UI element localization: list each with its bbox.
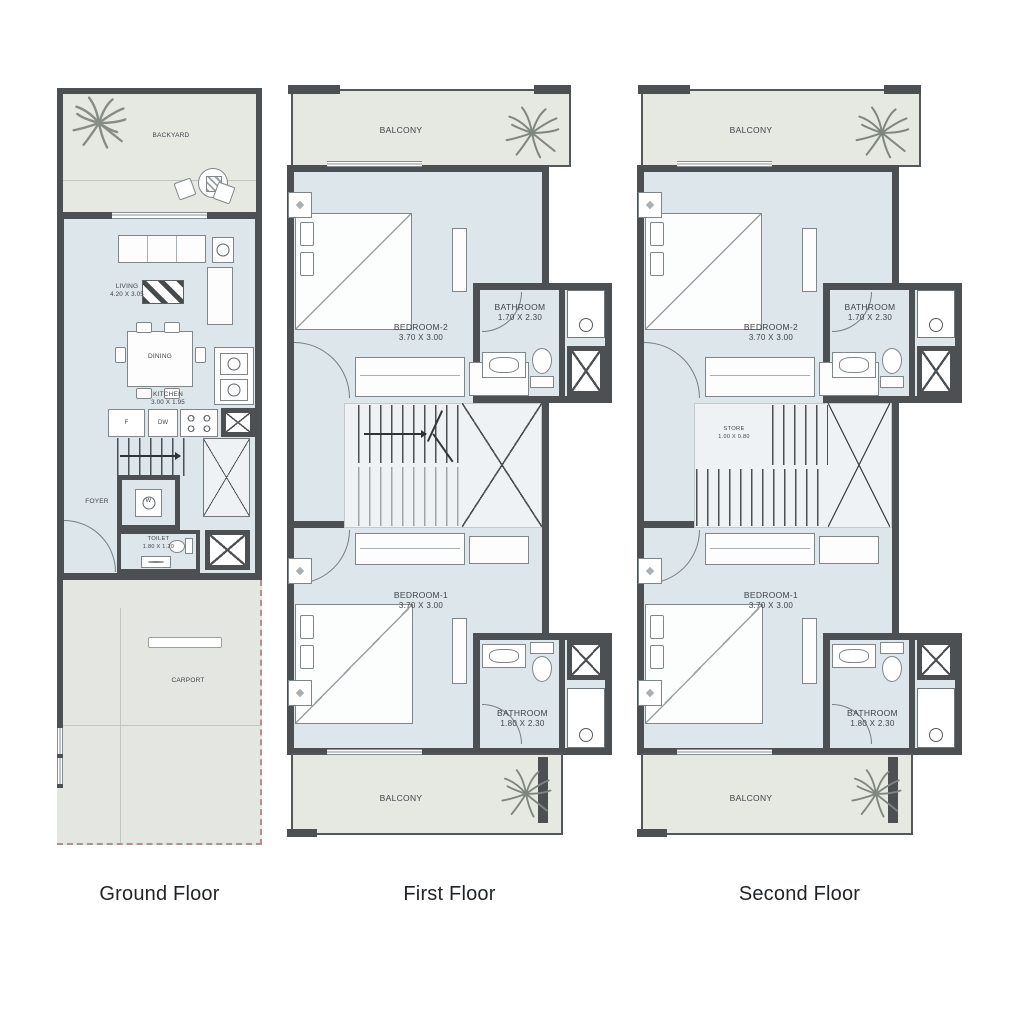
living-dim: 4.20 X 3.05	[94, 291, 160, 299]
shaft-xbox	[205, 530, 250, 570]
room-label-bathroom2: BATHROOM 1.70 X 2.30	[480, 302, 560, 323]
kitchen-sink	[220, 379, 248, 401]
stove	[180, 409, 218, 437]
pillow	[650, 222, 664, 246]
pillow	[300, 615, 314, 639]
store-label: STORE	[723, 426, 744, 432]
dresser	[452, 618, 467, 684]
stairs-landing	[462, 403, 542, 527]
balcony-top: BALCONY	[641, 89, 921, 167]
bedroom2-dim: 3.70 X 3.00	[346, 333, 496, 343]
pillow	[650, 252, 664, 276]
toilet-dim: 1.80 X 1.20	[123, 544, 194, 551]
stair-hall: STORE 1.00 X 0.80	[637, 403, 899, 528]
bedroom2-label: BEDROOM-2	[394, 322, 448, 332]
bedroom-door-arc	[294, 342, 350, 398]
bedroom2-window	[677, 161, 772, 167]
carport-window	[57, 728, 63, 754]
bedroom1-label: BEDROOM-1	[744, 590, 798, 600]
room-label-dining: DINING	[127, 353, 193, 361]
toilet-tank	[880, 642, 904, 654]
room-label-bathroom1: BATHROOM 1.80 X 2.30	[480, 708, 565, 729]
room-label-living: LIVING 4.20 X 3.05	[94, 283, 160, 300]
entry-door-arc	[64, 520, 116, 572]
bathroom-sink	[832, 644, 876, 668]
palm-icon	[853, 103, 911, 161]
pillow	[650, 645, 664, 669]
living-label: LIVING	[116, 283, 139, 290]
wardrobe	[705, 533, 815, 565]
room-label-foyer: FOYER	[69, 498, 125, 506]
balcony-wall-cap	[287, 829, 317, 837]
bedroom1-dim: 3.70 X 3.00	[346, 601, 496, 611]
stairs-treads-dashed	[358, 467, 468, 526]
balcony-wall-cap	[638, 85, 690, 94]
wall-marker	[288, 680, 312, 706]
room-label-backyard: BACKYARD	[135, 132, 207, 140]
dresser	[802, 618, 817, 684]
bedroom2-window	[327, 161, 422, 167]
room-label-balcony: BALCONY	[313, 793, 489, 804]
room-label-store: STORE 1.00 X 0.80	[701, 426, 767, 441]
carport-area: CARPORT	[57, 580, 262, 845]
dining-chair	[195, 347, 206, 363]
shaft-xbox	[221, 408, 255, 437]
fridge: F	[108, 409, 145, 437]
bathroom-sink	[482, 352, 526, 378]
shaft-xbox	[567, 640, 605, 680]
second-floor-plan: BALCONY BEDROOM-2 3.70 X 3.00 BATHROOM	[637, 85, 962, 855]
room-label-bathroom1: BATHROOM 1.80 X 2.30	[830, 708, 915, 729]
bedroom2-label: BEDROOM-2	[744, 322, 798, 332]
dishwasher: DW	[148, 409, 178, 437]
bed	[645, 604, 763, 724]
living-window	[112, 212, 207, 219]
first-floor-plan: BALCONY BEDROOM-2 3.70 X 3.00 BATHROOM	[287, 85, 612, 855]
toilet-bowl	[532, 656, 552, 682]
stair-hall	[287, 403, 549, 528]
pillow	[300, 222, 314, 246]
wardrobe	[355, 533, 465, 565]
bathroom1-dim: 1.80 X 2.30	[830, 719, 915, 729]
balcony-bottom: BALCONY	[291, 753, 563, 835]
bed	[645, 213, 762, 330]
media-unit	[212, 237, 234, 263]
carport-left-wall	[57, 580, 63, 788]
washer-label: W	[135, 498, 162, 506]
sofa	[118, 235, 206, 263]
stairs-treads	[772, 405, 828, 465]
pillow	[300, 252, 314, 276]
toilet-tank	[530, 376, 554, 388]
room-label-bedroom2: BEDROOM-2 3.70 X 3.00	[346, 322, 496, 343]
palm-icon	[503, 103, 561, 161]
backyard-room: BACKYARD	[57, 88, 262, 218]
room-label-balcony: BALCONY	[663, 793, 839, 804]
tree-icon	[69, 94, 129, 152]
shaft-xbox	[917, 346, 955, 396]
palm-icon	[849, 765, 903, 821]
bathroom-sink	[141, 556, 171, 568]
wall-marker	[638, 558, 662, 584]
room-label-bedroom2: BEDROOM-2 3.70 X 3.00	[696, 322, 846, 343]
store-dim: 1.00 X 0.80	[701, 434, 767, 441]
kitchen-label: KITCHEN	[153, 391, 183, 398]
stairs-treads	[696, 469, 828, 526]
caption-first-floor: First Floor	[287, 883, 612, 906]
dining-chair	[164, 322, 180, 333]
bathroom2-label: BATHROOM	[495, 302, 546, 312]
toilet-room: TOILET 1.80 X 1.20	[117, 530, 200, 573]
bathroom-sink	[832, 352, 876, 378]
wardrobe	[355, 357, 465, 397]
room-label-bedroom1: BEDROOM-1 3.70 X 3.00	[696, 590, 846, 611]
toilet-label: TOILET	[148, 536, 170, 542]
stairs-landing	[828, 403, 890, 527]
room-label-kitchen: KITCHEN 3.00 X 1.95	[130, 391, 206, 408]
room-label-bedroom1: BEDROOM-1 3.70 X 3.00	[346, 590, 496, 611]
balcony-wall-cap	[288, 85, 340, 94]
living-dining-kitchen-room: LIVING 4.20 X 3.05 DINING KITCHEN 3.00 X…	[57, 212, 262, 445]
wall-marker	[288, 558, 312, 584]
carport-window	[57, 758, 63, 784]
toilet-tank	[880, 376, 904, 388]
toilet-bowl	[882, 656, 902, 682]
stairs-arrow	[364, 433, 426, 435]
bedroom1-window	[677, 749, 772, 755]
stairs-landing	[203, 438, 250, 517]
bedroom1-window	[327, 749, 422, 755]
room-label-balcony: BALCONY	[313, 125, 489, 136]
caption-ground-floor: Ground Floor	[57, 883, 262, 906]
balcony-top: BALCONY	[291, 89, 571, 167]
shaft-xbox	[917, 640, 955, 680]
bathroom1-label: BATHROOM	[847, 708, 898, 718]
floorplan-image: BACKYARD LIVING 4.20 X 3.05 DINING	[0, 0, 1024, 1024]
caption-second-floor: Second Floor	[637, 883, 962, 906]
bed	[295, 213, 412, 330]
toilet-bowl	[532, 348, 552, 374]
bathroom1-dim: 1.80 X 2.30	[480, 719, 565, 729]
toilet-tank	[530, 642, 554, 654]
wall-marker	[638, 680, 662, 706]
dresser	[452, 228, 467, 292]
bench	[819, 536, 879, 564]
wardrobe	[705, 357, 815, 397]
bathroom-divider-wall	[909, 640, 915, 748]
bedroom2-dim: 3.70 X 3.00	[696, 333, 846, 343]
bathroom-sink	[482, 644, 526, 668]
dining-chair	[136, 322, 152, 333]
laundry-closet: W	[117, 475, 180, 530]
carport-slab	[148, 637, 222, 648]
balcony-wall-cap	[534, 85, 571, 94]
room-label-toilet: TOILET 1.80 X 1.20	[123, 536, 194, 551]
bedroom-door-arc	[644, 342, 700, 398]
toilet-bowl	[882, 348, 902, 374]
stairs-arrow	[120, 455, 180, 457]
bed	[295, 604, 413, 724]
bench	[469, 536, 529, 564]
shaft-xbox	[567, 346, 605, 396]
stairs-treads	[117, 438, 193, 476]
dining-chair	[115, 347, 126, 363]
pillow	[300, 645, 314, 669]
bedroom1-label: BEDROOM-1	[394, 590, 448, 600]
room-label-balcony: BALCONY	[663, 125, 839, 136]
shower	[917, 688, 955, 748]
stair-foyer-hall: FOYER W TOILET 1.80 X 1.20	[57, 438, 262, 580]
shower	[567, 290, 605, 338]
palm-icon	[499, 765, 553, 821]
carport-divider-line	[57, 725, 260, 726]
balcony-bottom: BALCONY	[641, 753, 913, 835]
dresser	[802, 228, 817, 292]
bathroom1-room: BATHROOM 1.80 X 2.30	[473, 633, 612, 755]
bathroom1-label: BATHROOM	[497, 708, 548, 718]
room-label-carport: CARPORT	[153, 677, 223, 685]
bedroom1-dim: 3.70 X 3.00	[696, 601, 846, 611]
wall-marker	[638, 192, 662, 218]
room-label-bathroom2: BATHROOM 1.70 X 2.30	[830, 302, 910, 323]
bathroom2-label: BATHROOM	[845, 302, 896, 312]
kitchen-dim: 3.00 X 1.95	[130, 399, 206, 407]
pillow	[650, 615, 664, 639]
bathroom-divider-wall	[559, 640, 565, 748]
shower	[917, 290, 955, 338]
wall-marker	[288, 192, 312, 218]
balcony-wall-cap	[637, 829, 667, 837]
ground-floor-plan: BACKYARD LIVING 4.20 X 3.05 DINING	[57, 88, 262, 845]
bathroom1-room: BATHROOM 1.80 X 2.30	[823, 633, 962, 755]
balcony-wall-cap	[884, 85, 921, 94]
bathroom2-dim: 1.70 X 2.30	[830, 313, 910, 323]
armchair	[207, 267, 233, 325]
kitchen-sink	[220, 353, 248, 375]
bathroom2-dim: 1.70 X 2.30	[480, 313, 560, 323]
shower	[567, 688, 605, 748]
